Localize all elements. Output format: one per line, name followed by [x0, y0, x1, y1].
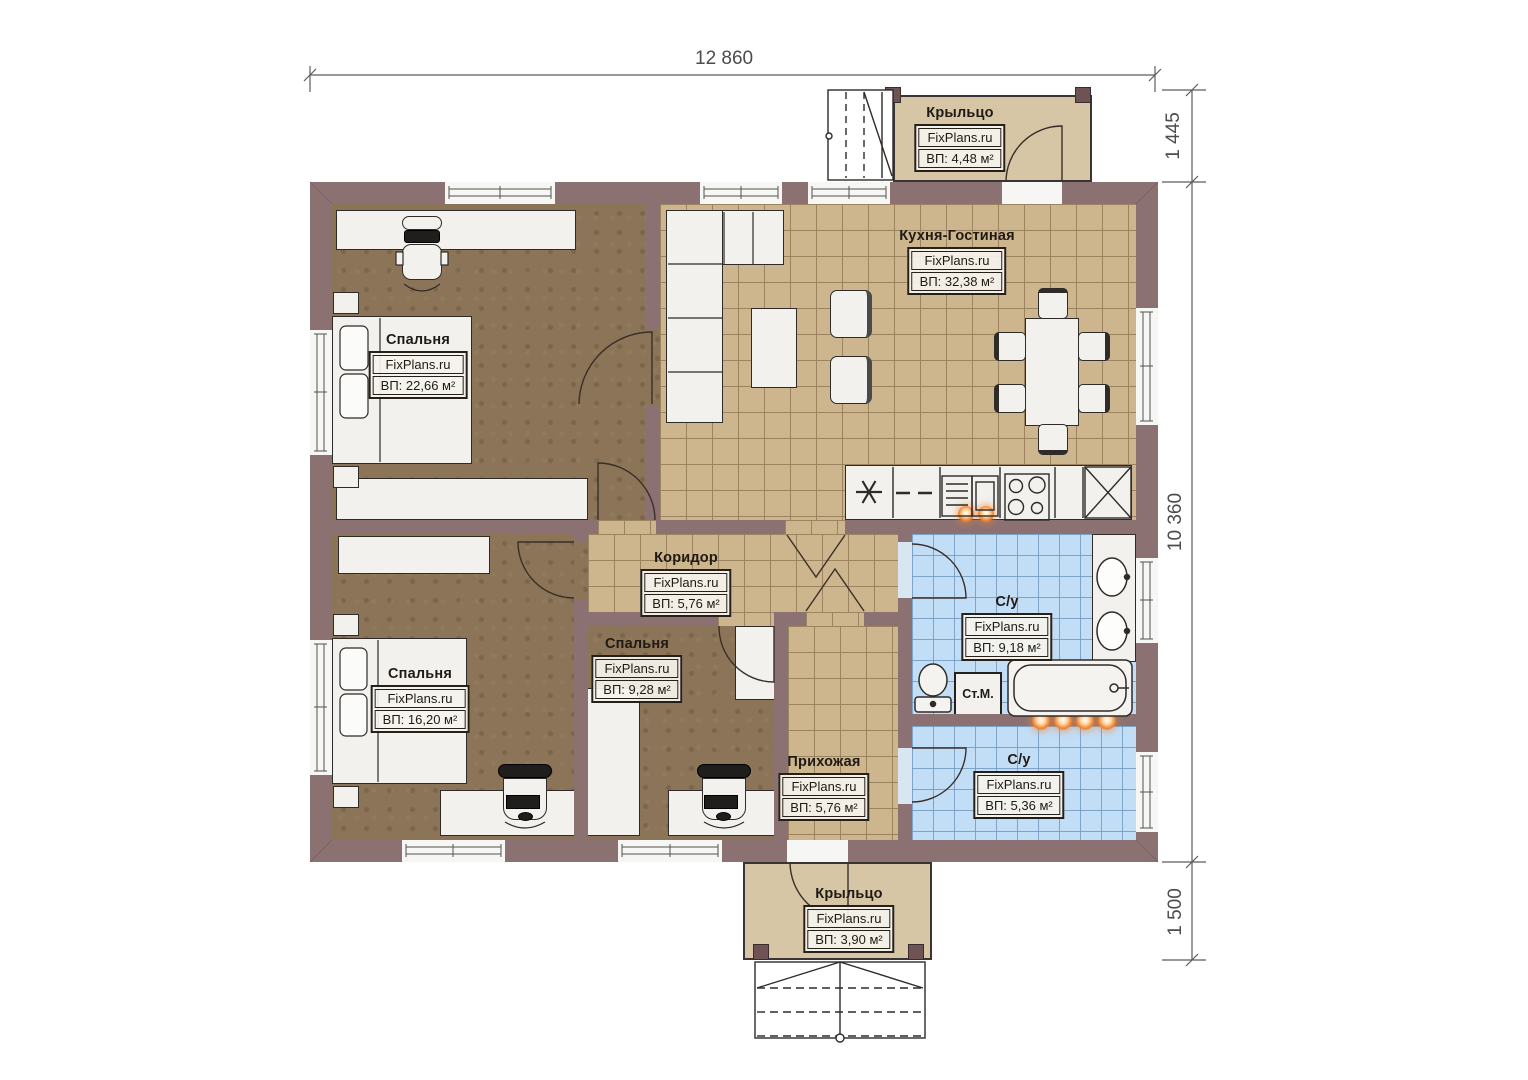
room-area: ВП: 5,76 м²	[644, 594, 727, 613]
window	[310, 330, 332, 455]
watermark: FixPlans.ru	[595, 659, 678, 678]
bedroom-large-closet	[336, 478, 588, 520]
room-label-box: FixPlans.ru ВП: 5,76 м²	[640, 569, 731, 617]
wall-interior	[574, 534, 588, 542]
watermark: FixPlans.ru	[375, 689, 466, 708]
room-label-box: FixPlans.ru ВП: 5,76 м²	[778, 773, 869, 821]
room-label-porch-bottom: Крыльцо FixPlans.ru ВП: 3,90 м²	[803, 886, 894, 953]
wall-interior	[898, 534, 912, 542]
laptop	[506, 795, 540, 809]
nightstand	[333, 614, 359, 636]
door-gap-floor	[898, 748, 912, 804]
door-gap-floor	[598, 520, 656, 534]
watermark: FixPlans.ru	[782, 777, 865, 796]
socket-dot	[1054, 712, 1072, 730]
dimension-right-main: 10 360	[1165, 493, 1187, 551]
wall-interior	[656, 520, 785, 534]
watermark: FixPlans.ru	[977, 775, 1060, 794]
room-name: С/у	[973, 752, 1064, 768]
room-label-box: FixPlans.ru ВП: 5,36 м²	[973, 771, 1064, 819]
room-area: ВП: 9,18 м²	[965, 638, 1048, 657]
socket-dot	[1076, 712, 1094, 730]
dining-chair	[1038, 288, 1068, 319]
mouse	[716, 812, 731, 821]
room-name: Спальня	[369, 332, 468, 348]
watermark: FixPlans.ru	[965, 617, 1048, 636]
door-gap-floor	[898, 542, 912, 598]
watermark: FixPlans.ru	[807, 909, 890, 928]
wall-interior	[574, 600, 588, 840]
room-label-bedroom-medium: Спальня FixPlans.ru ВП: 16,20 м²	[371, 666, 470, 733]
room-label-porch-top: Крыльцо FixPlans.ru ВП: 4,48 м²	[914, 105, 1005, 172]
room-label-box: FixPlans.ru ВП: 22,66 м²	[369, 351, 468, 399]
room-label-hallway: Прихожая FixPlans.ru ВП: 5,76 м²	[778, 754, 869, 821]
room-label-kitchen-living: Кухня-Гостиная FixPlans.ru ВП: 32,38 м²	[899, 228, 1015, 295]
washing-machine: Ст.М.	[954, 672, 1002, 716]
socket-dot	[1098, 712, 1116, 730]
room-label-bathroom-second: С/у FixPlans.ru ВП: 5,36 м²	[973, 752, 1064, 819]
wall-interior	[898, 804, 912, 840]
wall-interior	[646, 405, 660, 520]
armchair	[830, 290, 872, 338]
room-name: Крыльцо	[914, 105, 1005, 121]
room-name: Спальня	[591, 636, 682, 652]
bedroom-medium-closet	[338, 536, 490, 574]
socket-dot	[1032, 712, 1050, 730]
room-area: ВП: 22,66 м²	[373, 376, 464, 395]
room-label-box: FixPlans.ru ВП: 9,18 м²	[961, 613, 1052, 661]
dimension-right-bottom: 1 500	[1165, 888, 1187, 936]
room-name: Кухня-Гостиная	[899, 228, 1015, 244]
room-area: ВП: 5,36 м²	[977, 796, 1060, 815]
nightstand	[333, 466, 359, 488]
room-label-corridor: Коридор FixPlans.ru ВП: 5,76 м²	[640, 550, 731, 617]
room-area: ВП: 4,48 м²	[918, 149, 1001, 168]
dining-chair	[1078, 332, 1110, 361]
porch-column	[753, 944, 769, 960]
wall-interior	[774, 612, 806, 626]
nightstand	[333, 292, 359, 314]
door-gap-floor	[806, 612, 864, 626]
window	[402, 840, 505, 862]
porch-column	[908, 944, 924, 960]
armchair	[830, 356, 872, 404]
room-area: ВП: 16,20 м²	[375, 710, 466, 729]
stairs-top	[826, 90, 893, 180]
room-name: Коридор	[640, 550, 731, 566]
wall-interior	[845, 520, 1136, 534]
window	[1136, 558, 1158, 643]
watermark: FixPlans.ru	[918, 128, 1001, 147]
front-door-opening	[787, 840, 848, 862]
dimension-right-top: 1 445	[1163, 112, 1185, 160]
room-label-bedroom-large: Спальня FixPlans.ru ВП: 22,66 м²	[369, 332, 468, 399]
mouse	[518, 812, 533, 821]
room-name: Прихожая	[778, 754, 869, 770]
wall-interior	[898, 598, 912, 748]
room-area: ВП: 3,90 м²	[807, 930, 890, 949]
wardrobe	[584, 688, 640, 836]
room-area: ВП: 32,38 м²	[912, 272, 1003, 291]
laptop	[704, 795, 738, 809]
watermark: FixPlans.ru	[912, 251, 1003, 270]
room-label-box: FixPlans.ru ВП: 9,28 м²	[591, 655, 682, 703]
porch-door-opening	[1002, 182, 1062, 204]
stairs-bottom	[755, 962, 925, 1042]
dining-chair	[1078, 384, 1110, 413]
room-label-box: FixPlans.ru ВП: 16,20 м²	[371, 685, 470, 733]
bathroom-vanity	[1092, 534, 1136, 662]
room-label-box: FixPlans.ru ВП: 32,38 м²	[908, 247, 1007, 295]
office-chair-back	[498, 764, 552, 778]
room-name: Спальня	[371, 666, 470, 682]
room-name: С/у	[961, 594, 1052, 610]
watermark: FixPlans.ru	[373, 355, 464, 374]
corridor-floor	[588, 534, 898, 612]
bedroom-large-wardrobe	[336, 210, 576, 250]
porch-column	[1075, 87, 1091, 103]
door-gap-floor	[646, 330, 660, 405]
room-label-bedroom-small: Спальня FixPlans.ru ВП: 9,28 м²	[591, 636, 682, 703]
window	[700, 182, 782, 204]
office-chair-back	[404, 230, 440, 243]
wall-interior	[646, 204, 660, 330]
room-area: ВП: 5,76 м²	[782, 798, 865, 817]
wall-interior	[864, 612, 898, 626]
window	[808, 182, 890, 204]
office-chair-back	[697, 764, 751, 778]
dining-chair	[1038, 424, 1068, 455]
office-chair-seat	[402, 244, 442, 280]
window	[618, 840, 722, 862]
room-label-box: FixPlans.ru ВП: 3,90 м²	[803, 905, 894, 953]
room-area: ВП: 9,28 м²	[595, 680, 678, 699]
floor-plan-canvas: Ст.М.	[0, 0, 1528, 1080]
door-gap-floor	[785, 520, 845, 534]
window	[1136, 752, 1158, 832]
nightstand	[333, 786, 359, 808]
office-chair-headrest	[402, 216, 442, 230]
dimension-width-top: 12 860	[695, 48, 753, 70]
dining-table	[1025, 318, 1079, 426]
socket-dot	[958, 506, 974, 522]
sofa-side-arm	[666, 210, 723, 423]
window	[1136, 308, 1158, 425]
coffee-table	[751, 308, 797, 388]
washing-machine-label: Ст.М.	[962, 687, 993, 701]
window	[445, 182, 555, 204]
socket-dot	[978, 506, 994, 522]
door-gap-floor	[574, 542, 588, 600]
cabinet	[735, 626, 776, 700]
dining-chair	[994, 384, 1026, 413]
wall-interior	[332, 520, 598, 534]
window	[310, 640, 332, 775]
porch-column	[885, 87, 901, 103]
watermark: FixPlans.ru	[644, 573, 727, 592]
room-label-box: FixPlans.ru ВП: 4,48 м²	[914, 124, 1005, 172]
room-name: Крыльцо	[803, 886, 894, 902]
room-label-bathroom-main: С/у FixPlans.ru ВП: 9,18 м²	[961, 594, 1052, 661]
dining-chair	[994, 332, 1026, 361]
